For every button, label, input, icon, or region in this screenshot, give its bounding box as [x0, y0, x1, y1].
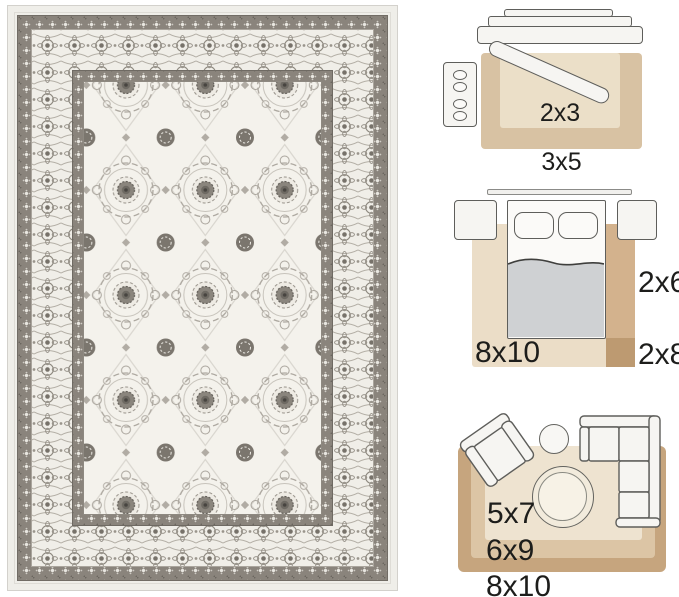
size-label-8x10-living: 8x10 — [486, 572, 551, 597]
size-label-6x9: 6x9 — [486, 536, 534, 566]
size-diagram-living-room: 5x7 6x9 8x10 — [0, 0, 679, 597]
rug-size-guide-image: 2x3 3x5 8x10 2x6 2x8 — [0, 0, 679, 597]
size-label-5x7: 5x7 — [487, 499, 535, 529]
sectional-sofa-icon — [578, 414, 662, 530]
coffee-table-inner-ring — [538, 472, 587, 521]
coffee-table-icon — [532, 466, 594, 528]
side-table-icon — [539, 424, 569, 454]
